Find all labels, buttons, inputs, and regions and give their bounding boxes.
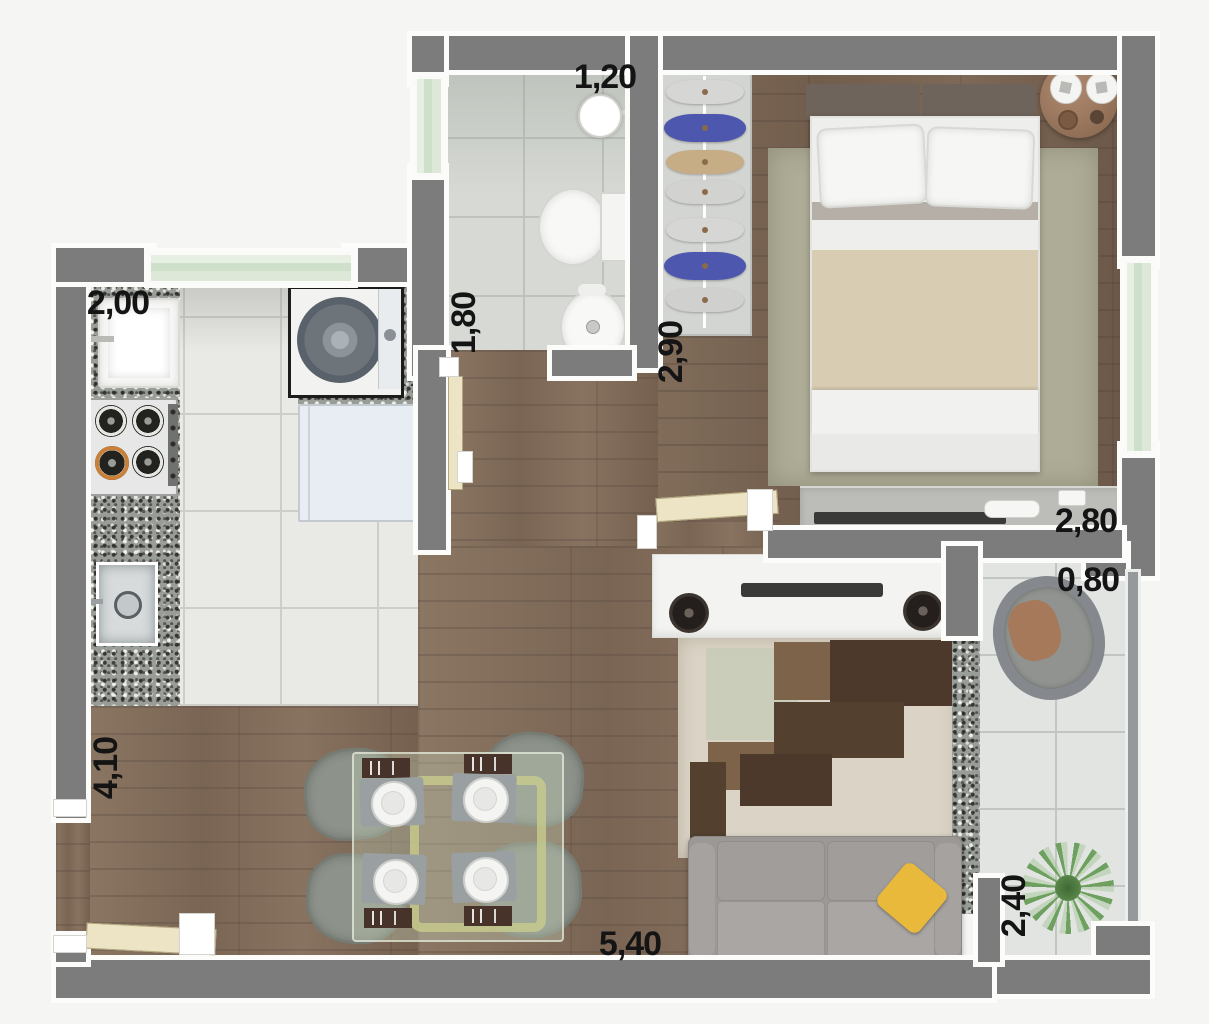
placemat-dark bbox=[362, 758, 410, 778]
wall-kitchen-top-right bbox=[346, 248, 420, 282]
entry-door-jamb bbox=[54, 800, 86, 816]
washing-machine-lid-center bbox=[331, 331, 349, 349]
closet-icon bbox=[658, 70, 752, 336]
laundry-sink-faucet bbox=[88, 336, 114, 342]
wall-balcony-bottom bbox=[992, 960, 1150, 994]
shower-head-icon bbox=[578, 94, 622, 138]
wall-kitchen-top-left bbox=[56, 248, 152, 282]
bidet-tap bbox=[578, 284, 606, 296]
living-rug-icon bbox=[678, 638, 958, 858]
bedroom-window bbox=[1124, 260, 1154, 454]
speaker-icon bbox=[903, 591, 943, 631]
plant-center bbox=[1055, 875, 1081, 901]
wall-top bbox=[412, 36, 1155, 70]
double-bed-icon bbox=[810, 116, 1040, 472]
kitchen-window bbox=[148, 252, 354, 284]
stove-knob-strip bbox=[168, 404, 178, 486]
kitchen-sink-drain bbox=[114, 591, 142, 619]
placemat-dark bbox=[364, 908, 412, 928]
wall-left bbox=[56, 250, 86, 818]
clothes-hanger bbox=[666, 218, 744, 242]
plant-icon bbox=[1022, 842, 1114, 934]
dim-balcony-width: 0,80 bbox=[1057, 563, 1119, 597]
stove-burner bbox=[132, 405, 164, 437]
hallway-floor bbox=[444, 350, 658, 560]
place-setting-icon bbox=[362, 854, 426, 930]
sofa-arm bbox=[689, 843, 715, 957]
remote-icon bbox=[984, 500, 1040, 518]
sofa-back-cushion bbox=[717, 841, 825, 901]
cup-icon bbox=[1050, 72, 1082, 104]
balcony-glass-railing bbox=[1128, 572, 1138, 930]
bed-pillow bbox=[816, 123, 928, 209]
stove-burner bbox=[132, 446, 164, 478]
clothes-hanger bbox=[666, 180, 744, 204]
clothes-hanger bbox=[666, 80, 744, 104]
kitchen-sink-faucet bbox=[83, 599, 103, 604]
washing-machine-knob bbox=[384, 329, 396, 341]
bathroom-window bbox=[414, 76, 444, 176]
bed-blanket bbox=[812, 250, 1038, 390]
rug-dark-step bbox=[740, 754, 832, 806]
kitchen-sink-icon bbox=[96, 562, 158, 646]
dim-kitchen-width: 2,00 bbox=[87, 286, 149, 320]
wall-right-upper bbox=[1122, 36, 1155, 264]
stove-icon bbox=[88, 398, 178, 496]
plate-icon bbox=[371, 781, 417, 827]
wall-bottom bbox=[56, 960, 992, 998]
coaster-icon bbox=[1090, 110, 1104, 124]
floor-plan: 2,00 1,20 1,80 2,90 2,80 0,80 4,10 5,40 … bbox=[0, 0, 1209, 1024]
wall-bath-bottom bbox=[552, 350, 632, 376]
bed-sheet-fold bbox=[812, 390, 1038, 434]
speaker-icon bbox=[669, 593, 709, 633]
clothes-hanger bbox=[664, 252, 746, 280]
dim-living-width: 5,40 bbox=[599, 927, 661, 961]
bed-headboard bbox=[806, 84, 920, 120]
tv-stand-icon bbox=[652, 554, 960, 638]
bidet-drain bbox=[586, 320, 600, 334]
rug-brown-block bbox=[774, 642, 834, 700]
entry-door-jamb bbox=[54, 936, 86, 952]
bedroom-door-jamb bbox=[638, 516, 656, 548]
stove-burner bbox=[95, 405, 127, 437]
stove-burner bbox=[95, 446, 129, 480]
wall-living-balcony-upper bbox=[946, 546, 978, 636]
dim-bedroom-width: 2,80 bbox=[1055, 504, 1117, 538]
fridge-icon bbox=[298, 404, 422, 522]
dim-kitchen-living-depth: 4,10 bbox=[89, 737, 123, 799]
bathroom-door-stop bbox=[458, 452, 472, 482]
wicker-chair-cushion bbox=[1003, 595, 1067, 666]
bathroom-door-jamb bbox=[440, 358, 458, 376]
sofa-icon bbox=[688, 836, 962, 964]
fridge-divider bbox=[308, 406, 310, 520]
clothes-hanger bbox=[664, 114, 746, 142]
entry-door-floor bbox=[56, 816, 90, 940]
coaster-icon bbox=[1058, 110, 1078, 130]
side-table-icon bbox=[1040, 60, 1118, 138]
plate-icon bbox=[463, 857, 509, 903]
place-setting-icon bbox=[452, 754, 516, 828]
bed-pillow bbox=[925, 126, 1036, 210]
wall-right-mid bbox=[1122, 446, 1155, 576]
washing-machine-icon bbox=[288, 286, 404, 398]
dim-balcony-depth: 2,40 bbox=[997, 875, 1031, 937]
dim-bathroom-depth: 1,80 bbox=[447, 292, 481, 354]
clothes-hanger bbox=[666, 150, 744, 174]
rug-dark-step bbox=[830, 640, 956, 706]
soundbar-icon bbox=[741, 583, 883, 597]
place-setting-icon bbox=[452, 852, 516, 928]
bed-foot bbox=[812, 434, 1038, 470]
dim-closet-wall-depth: 2,90 bbox=[654, 321, 688, 383]
rug-dark-step bbox=[774, 702, 904, 758]
wall-bath-left-lower bbox=[412, 168, 444, 376]
entry-door-stop bbox=[180, 914, 214, 954]
place-setting-icon bbox=[360, 758, 424, 832]
placemat-dark bbox=[464, 906, 512, 926]
sofa-seat-cushion bbox=[717, 901, 825, 959]
bedroom-door-stop bbox=[748, 490, 772, 530]
placemat-dark bbox=[464, 754, 512, 774]
clothes-hanger bbox=[666, 288, 744, 312]
toilet-icon bbox=[538, 188, 608, 266]
bed-headboard bbox=[922, 84, 1036, 120]
wall-kitchen-hall bbox=[418, 350, 446, 550]
plate-icon bbox=[373, 859, 419, 905]
dim-bathroom-width: 1,20 bbox=[574, 60, 636, 94]
plate-icon bbox=[463, 777, 509, 823]
cup-icon bbox=[1086, 72, 1118, 104]
washing-machine-panel bbox=[378, 289, 401, 389]
tv-icon bbox=[814, 512, 1006, 524]
